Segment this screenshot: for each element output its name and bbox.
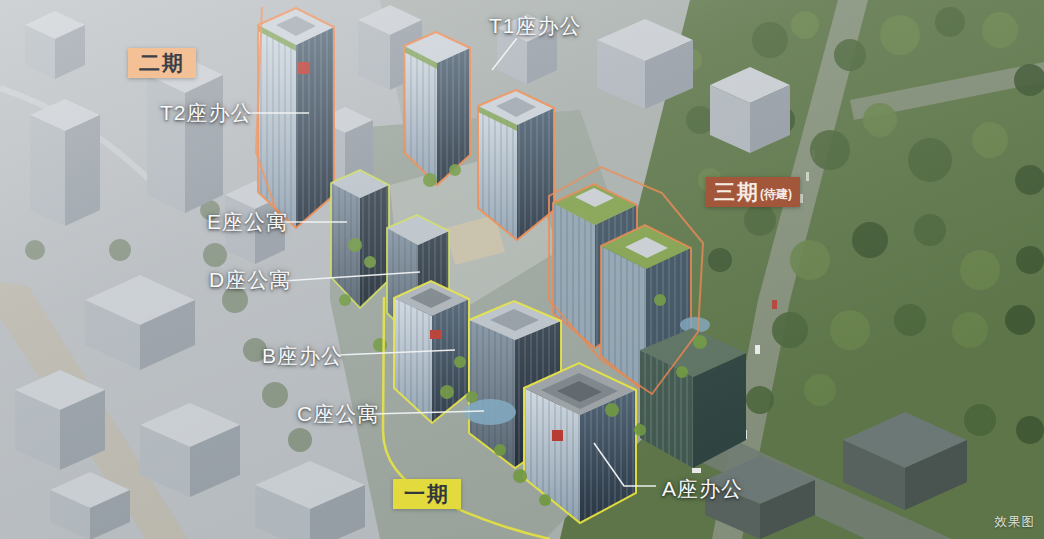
label-e-apartment: E座公寓: [207, 210, 288, 233]
label-t2-office: T2座办公: [160, 101, 253, 124]
phase3-badge: 三期(待建): [706, 177, 800, 207]
phase1-badge: 一期: [393, 479, 461, 509]
label-b-office: B座办公: [262, 344, 343, 367]
label-d-apartment: D座公寓: [209, 268, 291, 291]
label-c-apartment: C座公寓: [297, 402, 379, 425]
rendering-watermark: 效果图: [995, 514, 1036, 531]
aerial-render-illustration: [0, 0, 1044, 539]
phase3-name: 三期: [714, 180, 760, 203]
label-a-office: A座办公: [662, 477, 743, 500]
project-aerial-rendering: 二期 三期(待建) 一期 T2座办公 T1座办公 E座公寓 D座公寓 B座办公 …: [0, 0, 1044, 539]
phase3-status: (待建): [760, 187, 792, 201]
haze-overlay: [0, 0, 1044, 539]
label-t1-office: T1座办公: [489, 14, 582, 37]
phase2-badge: 二期: [128, 48, 196, 78]
